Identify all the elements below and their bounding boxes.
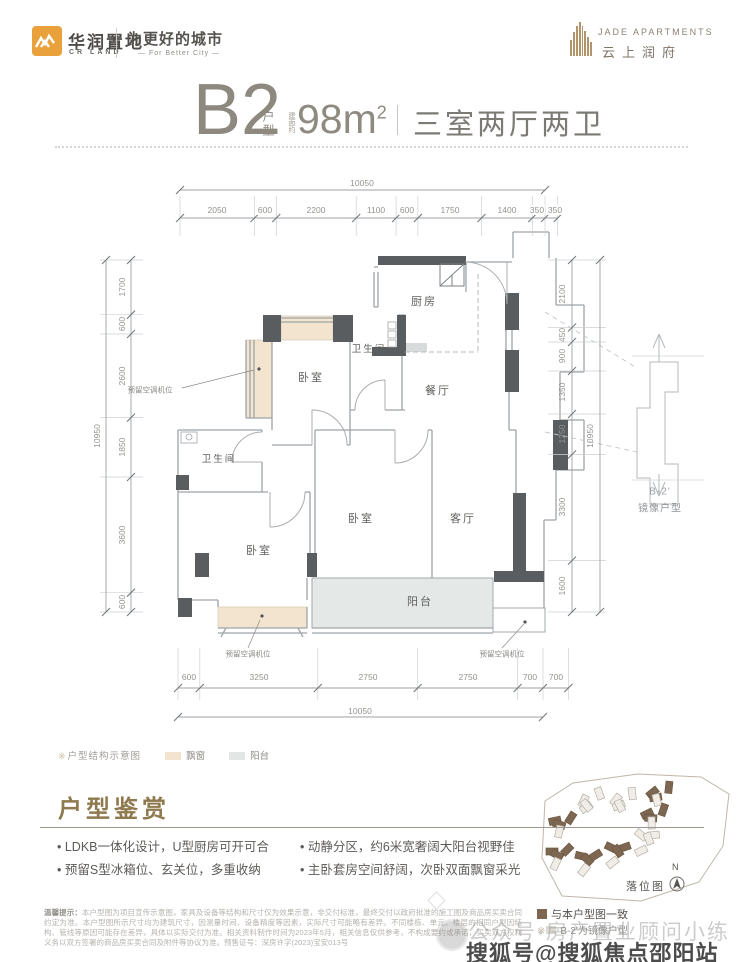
building-cluster-highlight bbox=[604, 842, 631, 869]
dim-label: 3600 bbox=[117, 525, 127, 546]
dim-label: 1250 bbox=[557, 424, 567, 445]
dim-label: 2600 bbox=[117, 366, 127, 387]
legend-bay-label: 飘窗 bbox=[186, 751, 205, 762]
dim-label: 2750 bbox=[458, 672, 479, 682]
bullet-list-left: LDKB一体化设计，U型厨房可开可合 预留S型冰箱位、玄关位，多重收纳 bbox=[57, 836, 307, 882]
dim-label: 600 bbox=[117, 594, 127, 610]
dim-label: 1350 bbox=[557, 382, 567, 403]
legend-balcony-label: 阳台 bbox=[250, 751, 269, 762]
dim-label: 700 bbox=[522, 672, 538, 682]
bedroom3-door-arc bbox=[395, 430, 428, 463]
crland-logo-icon bbox=[32, 26, 62, 56]
dim-label: 1700 bbox=[117, 277, 127, 298]
building-cluster-highlight bbox=[548, 811, 577, 838]
dim-label: 3250 bbox=[249, 672, 270, 682]
header: 华润置地 CR LAND 为更好的城市 — For Better City — … bbox=[0, 0, 740, 70]
room-label-bedroom: 卧室 bbox=[348, 510, 374, 526]
plan-legend: ※户型结构示意图飘窗阳台 bbox=[58, 748, 269, 762]
room-label-dining: 餐厅 bbox=[425, 382, 451, 398]
room-label-bath: 卫生间 bbox=[352, 341, 387, 355]
building-cluster-highlight bbox=[640, 803, 668, 829]
bath1-door-arc bbox=[355, 380, 385, 410]
ac-leaders bbox=[182, 367, 527, 648]
unit-code-suffix: 户型 bbox=[260, 110, 277, 138]
dim-label: 1400 bbox=[497, 205, 518, 215]
sitemap-title: 落位图 bbox=[626, 878, 665, 894]
bedroom1-door-arc bbox=[312, 410, 347, 445]
floorplan-page: 华润置地 CR LAND 为更好的城市 — For Better City — … bbox=[0, 0, 740, 962]
dim-label: 1600 bbox=[557, 576, 567, 597]
dim-label: 2100 bbox=[557, 284, 567, 305]
room-label-balcony: 阳台 bbox=[407, 593, 433, 609]
dim-label: 600 bbox=[257, 205, 273, 215]
room-label-kitchen: 厨房 bbox=[411, 293, 437, 309]
thin-walls bbox=[178, 232, 584, 637]
balcony-fill bbox=[312, 578, 493, 628]
mirror-unit-code: B-2' bbox=[649, 487, 670, 498]
wechat-stamp-icon bbox=[436, 919, 468, 951]
bullet-item: 动静分区，约6米宽奢阔大阳台视野佳 bbox=[300, 836, 550, 859]
dim-label: 600 bbox=[181, 672, 197, 682]
dim-label: 600 bbox=[399, 205, 415, 215]
balcony-swatch bbox=[229, 752, 245, 760]
bullet-list-right: 动静分区，约6米宽奢阔大阳台视野佳 主卧套房空间舒阔，次卧双面飘窗采光 bbox=[300, 836, 550, 882]
north-needle bbox=[673, 878, 681, 889]
dim-label: 350 bbox=[547, 205, 563, 215]
dim-label: 1750 bbox=[440, 205, 461, 215]
unit-layout: 三室两厅两卫 bbox=[413, 101, 605, 143]
north-label: N bbox=[672, 862, 679, 872]
section-divider bbox=[40, 827, 704, 828]
crland-slogan: 为更好的城市 bbox=[127, 28, 223, 49]
asterisk-icon: ※ bbox=[58, 751, 66, 761]
dim-total: 10050 bbox=[347, 706, 373, 716]
project-name-en: JADE APARTMENTS bbox=[598, 27, 714, 37]
mountain-icon bbox=[32, 26, 62, 56]
building-cluster-highlight bbox=[646, 781, 673, 807]
room-label-bedroom: 卧室 bbox=[246, 542, 272, 558]
section-heading: 户型鉴赏 bbox=[58, 789, 170, 824]
dim-label: 3300 bbox=[557, 497, 567, 518]
building-cluster-highlight bbox=[546, 843, 574, 871]
building-cluster bbox=[634, 828, 660, 856]
bay-window-fills bbox=[218, 316, 333, 628]
dim-label: 1100 bbox=[366, 205, 386, 215]
project-name-cn: 云上润府 bbox=[602, 42, 682, 61]
jade-logo-icon bbox=[570, 20, 592, 56]
compass-icon bbox=[670, 877, 684, 891]
entry-door-arc bbox=[465, 262, 507, 304]
room-label-living: 客厅 bbox=[450, 510, 476, 526]
ac-note: 预留空调机位 bbox=[226, 649, 271, 660]
room-label-bedroom: 卧室 bbox=[298, 369, 324, 385]
dim-label: 350 bbox=[529, 205, 545, 215]
dim-label: 2200 bbox=[306, 205, 327, 215]
building-cluster-highlight bbox=[575, 849, 603, 877]
dim-total: 10050 bbox=[349, 178, 375, 188]
ac-platform-box bbox=[493, 608, 545, 632]
sohu-diamond-icon bbox=[427, 891, 445, 909]
crland-slogan-en: — For Better City — bbox=[138, 50, 220, 57]
dimension-lines bbox=[100, 186, 606, 721]
watermark-sohu: 搜狐号@搜狐焦点邵阳站 bbox=[466, 936, 718, 962]
mirror-unit-label: 镜像户型 bbox=[638, 500, 682, 515]
ac-note: 预留空调机位 bbox=[128, 385, 173, 396]
kitchen-counter bbox=[403, 343, 427, 352]
fridge-icon bbox=[440, 264, 464, 286]
dim-total: 10950 bbox=[585, 423, 595, 449]
building-cluster bbox=[610, 787, 637, 813]
dim-label: 700 bbox=[548, 672, 564, 682]
dim-label: 900 bbox=[557, 348, 567, 364]
dim-label: 600 bbox=[117, 316, 127, 332]
dim-label: 2050 bbox=[207, 205, 228, 215]
header-divider bbox=[116, 28, 117, 58]
bullet-item: 主卧套房空间舒阔，次卧双面飘窗采光 bbox=[300, 859, 550, 882]
bullet-item: LDKB一体化设计，U型厨房可开可合 bbox=[57, 836, 307, 859]
door-arcs bbox=[232, 262, 507, 527]
dim-total: 10950 bbox=[92, 423, 102, 449]
title-divider bbox=[397, 105, 398, 135]
area-note: 建面约 bbox=[286, 112, 296, 133]
ac-note: 预留空调机位 bbox=[480, 649, 525, 660]
bay-window-swatch bbox=[165, 752, 181, 760]
kitchen-dashed-opening bbox=[405, 274, 478, 352]
structural-walls bbox=[176, 256, 568, 617]
legend-note: 户型结构示意图 bbox=[68, 751, 142, 762]
bedroom2-door-arc bbox=[270, 492, 305, 527]
unit-area: 98m2 bbox=[297, 96, 387, 143]
mirror-unit-outline bbox=[545, 312, 704, 504]
dotted-separator bbox=[55, 146, 688, 148]
dim-label: 450 bbox=[557, 327, 567, 343]
dim-label: 1850 bbox=[117, 437, 127, 458]
dim-label: 2750 bbox=[358, 672, 379, 682]
room-label-bath: 卫生间 bbox=[202, 451, 237, 465]
crland-abbr: CR LAND bbox=[69, 49, 122, 56]
bullet-item: 预留S型冰箱位、玄关位，多重收纳 bbox=[57, 859, 307, 882]
disclaimer-label: 温馨提示： bbox=[44, 908, 82, 917]
building-cluster bbox=[578, 787, 605, 814]
